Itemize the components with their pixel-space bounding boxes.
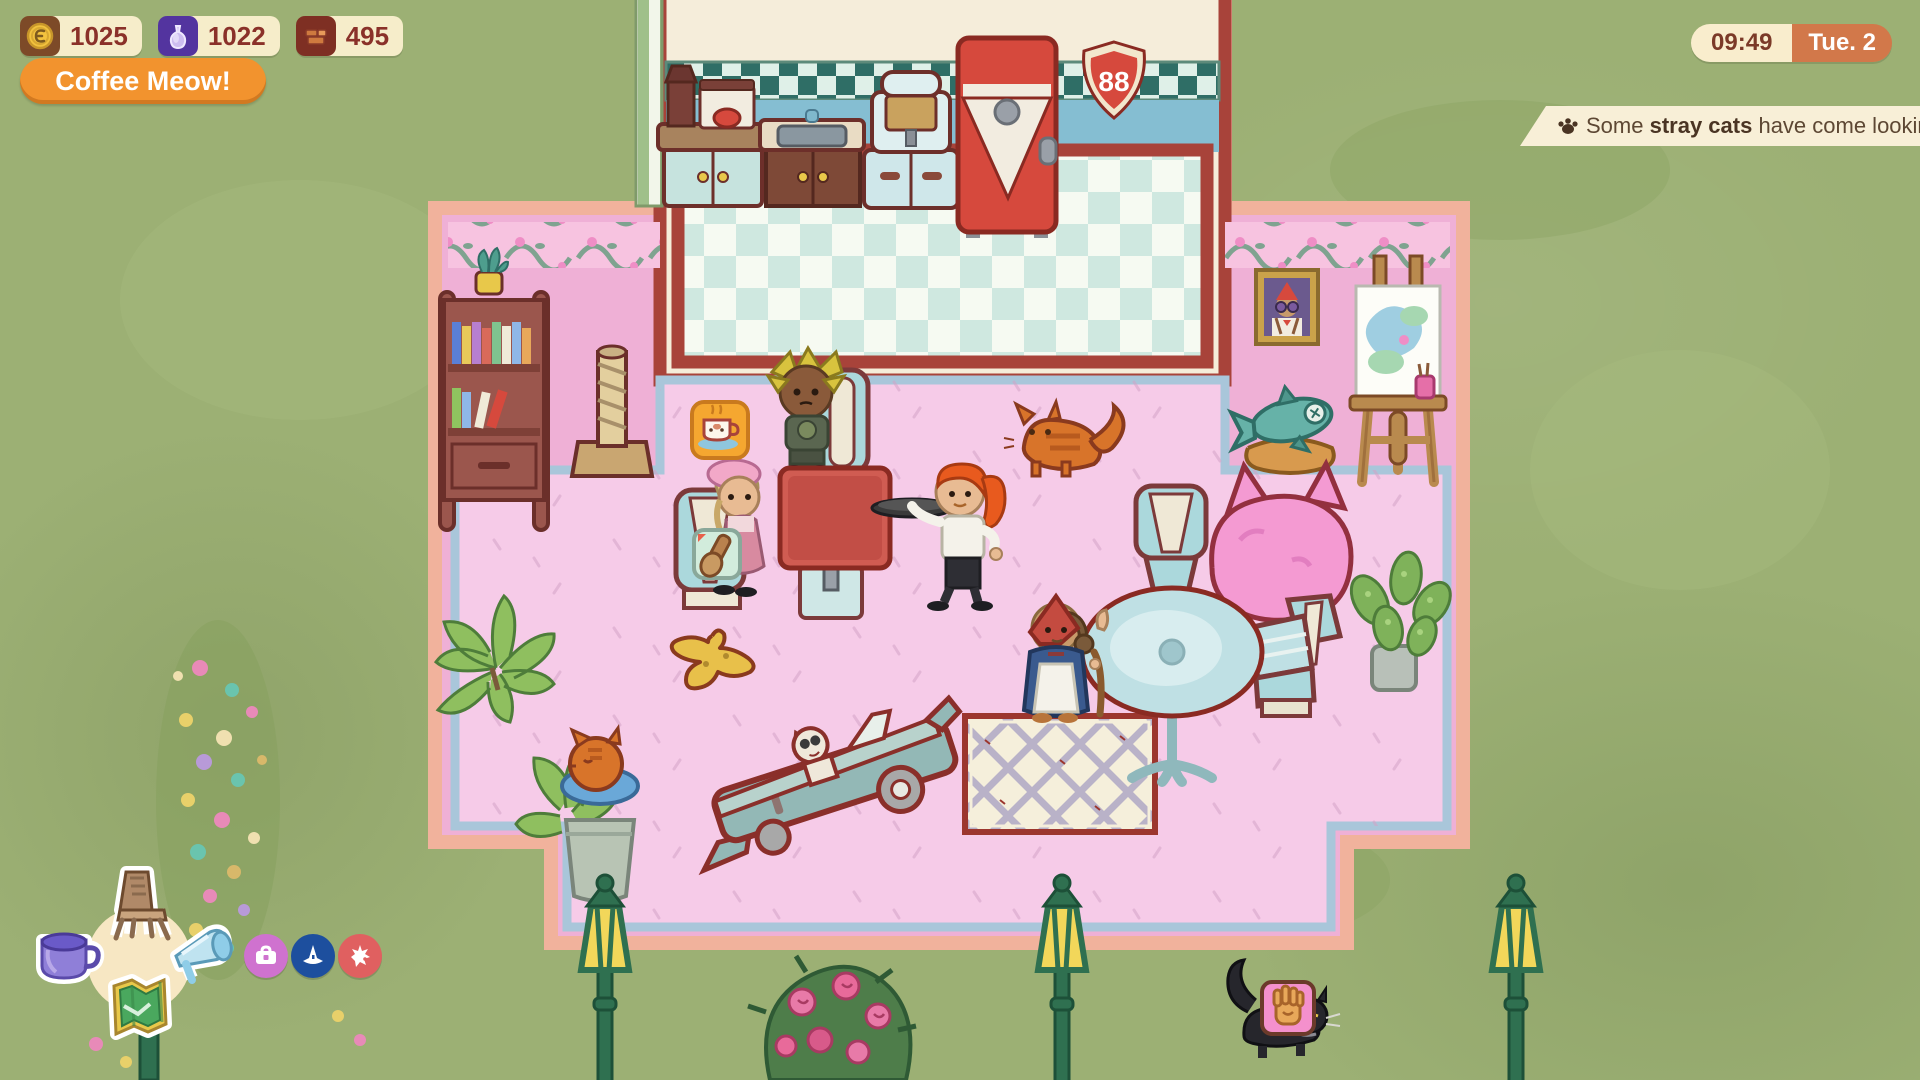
currency-bricks-value: 495 xyxy=(346,21,389,52)
clock-day: Tue. 2 xyxy=(1792,24,1892,62)
cat-portrait[interactable] xyxy=(1256,270,1318,344)
coin-icon xyxy=(20,16,60,56)
cafe-scene: 88 xyxy=(0,0,1920,1080)
clock-widget: 09:49 Tue. 2 xyxy=(1691,24,1892,62)
stray-cats-notification: Some stray cats have come looking xyxy=(1516,106,1920,146)
bricks-icon xyxy=(296,16,336,56)
burst-icon xyxy=(347,943,373,969)
kitchen-sink-counter[interactable] xyxy=(760,110,864,206)
quick-button-wizard[interactable] xyxy=(291,934,335,978)
lamp-post-3 xyxy=(1492,875,1540,1080)
quick-button-supplies[interactable] xyxy=(244,934,288,978)
currency-coins-value: 1025 xyxy=(70,21,128,52)
game-stage: 88 xyxy=(0,0,1920,1080)
currency-coins: 1025 xyxy=(20,16,142,56)
lattice-rug[interactable] xyxy=(965,716,1155,832)
coffee-grinder-station[interactable] xyxy=(658,66,766,206)
lamp-post-1 xyxy=(581,875,629,1080)
map-icon xyxy=(100,972,178,1046)
paw-icon xyxy=(1556,114,1580,138)
currency-essence: 1022 xyxy=(158,16,280,56)
rose-bush xyxy=(748,956,916,1080)
clock-time: 09:49 xyxy=(1691,24,1792,62)
currency-essence-value: 1022 xyxy=(208,21,266,52)
quick-button-punk[interactable] xyxy=(338,934,382,978)
petting-bubble[interactable] xyxy=(1262,982,1314,1034)
sleeping-cat[interactable] xyxy=(568,728,622,790)
flask-icon xyxy=(158,16,198,56)
lamp-post-2 xyxy=(1038,875,1086,1080)
order-bubble[interactable] xyxy=(692,402,748,458)
retro-fridge[interactable] xyxy=(958,38,1056,238)
route-sign-number: 88 xyxy=(1098,66,1129,97)
notification-text: Some stray cats have come looking xyxy=(1586,113,1920,139)
espresso-machine[interactable] xyxy=(864,72,958,208)
painting-easel[interactable] xyxy=(1350,256,1446,482)
currency-bar: 1025 1022 495 xyxy=(20,16,403,56)
menu-map[interactable] xyxy=(100,972,178,1051)
wizard-hat-icon xyxy=(300,943,326,969)
coffee-meow-button[interactable]: Coffee Meow! xyxy=(20,58,266,104)
request-bubble[interactable] xyxy=(694,530,740,580)
awning-strip xyxy=(636,0,662,206)
currency-bricks: 495 xyxy=(296,16,403,56)
briefcase-icon xyxy=(253,943,279,969)
